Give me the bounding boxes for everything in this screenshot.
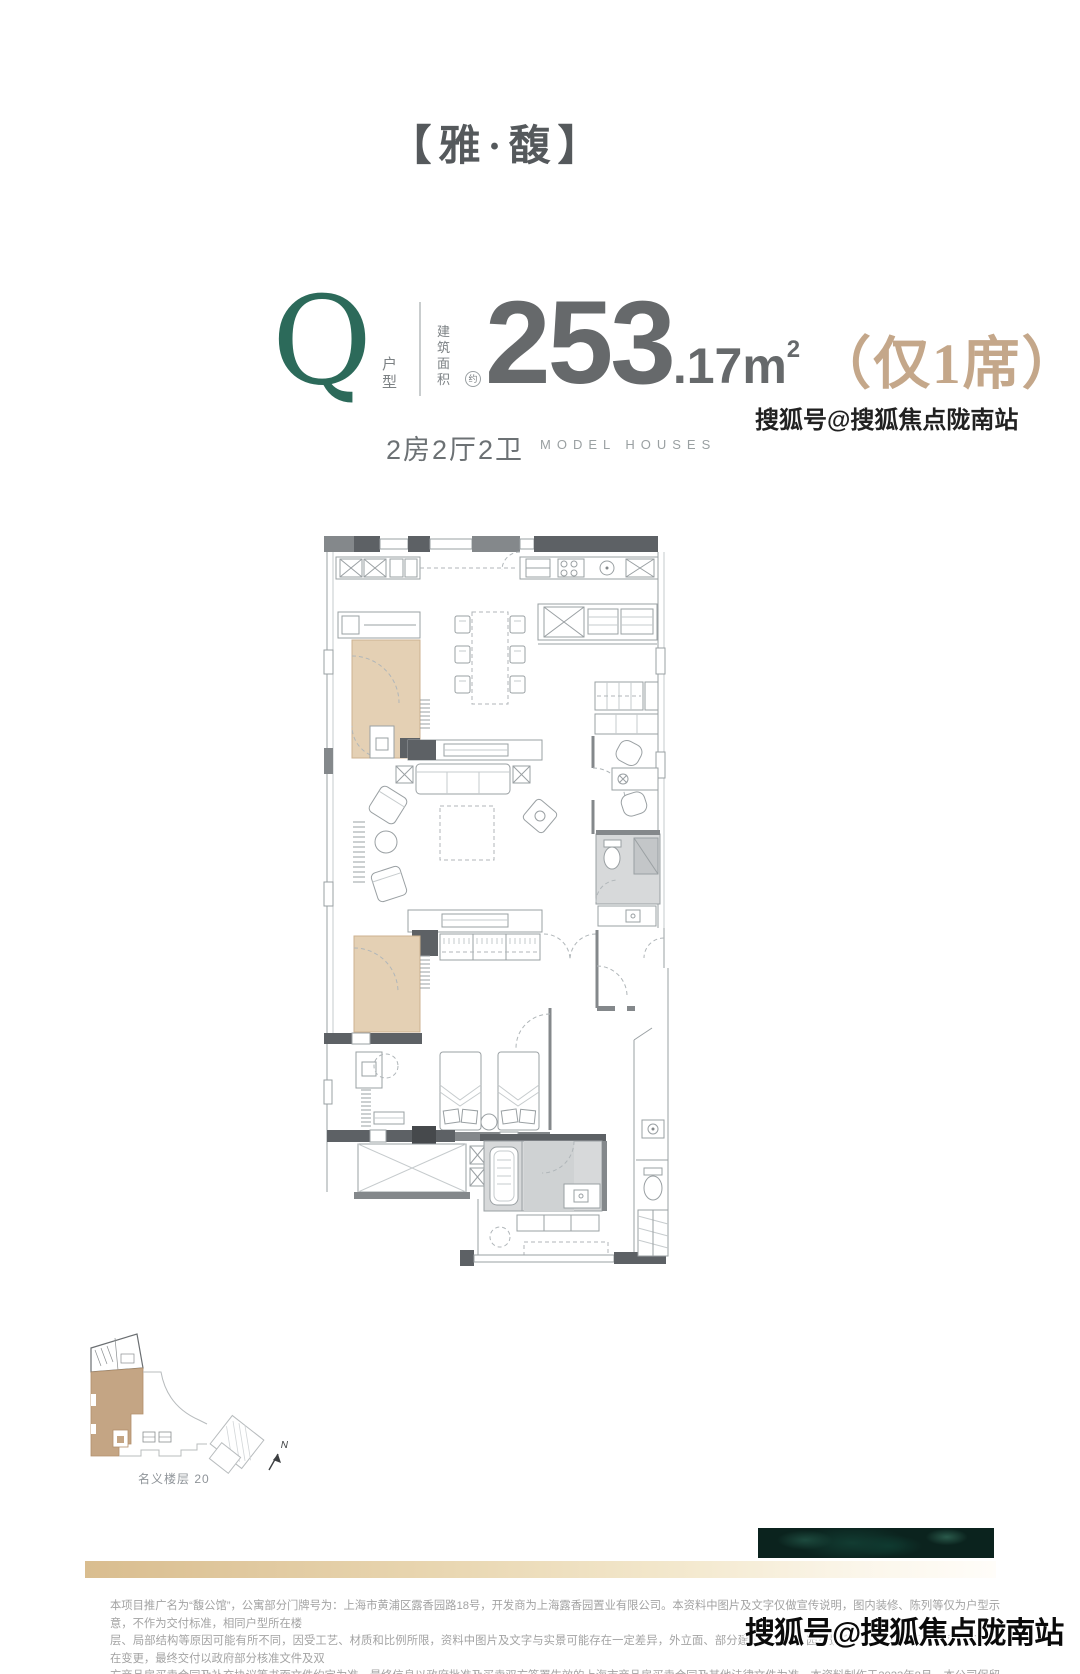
bathroom-1 xyxy=(596,830,660,926)
area-decimal: .17m xyxy=(673,338,787,394)
exclusive-badge: （仅1席） xyxy=(814,318,1080,400)
unit-letter: Q xyxy=(272,280,372,402)
flyer-page: 【雅·馥】 Q 户型 建筑 面积 约 253.17m2 （仅1席） 2房2厅2卫… xyxy=(0,0,1080,1674)
elevator-shaft xyxy=(354,1144,485,1199)
master-bathroom xyxy=(480,1134,607,1231)
watermark-top: 搜狐号@搜狐焦点陇南站 xyxy=(755,400,1018,435)
dining-area xyxy=(455,612,525,704)
site-plan: N xyxy=(85,1326,290,1478)
tv-wardrobe-wall xyxy=(408,910,596,960)
spec-divider xyxy=(419,302,421,396)
green-marble-image xyxy=(758,1528,994,1558)
area-label-line1: 建筑 xyxy=(437,324,463,356)
area-label-line2: 面积 xyxy=(437,356,463,388)
entry-hall xyxy=(338,612,430,758)
gold-divider-bar xyxy=(85,1561,996,1578)
console-cabinets xyxy=(538,604,658,734)
area-approx-badge: 约 xyxy=(465,371,481,387)
top-wall xyxy=(324,536,658,552)
floor-level-label: 名义楼层 20 xyxy=(138,1470,210,1487)
area-label: 建筑 面积 约 xyxy=(437,324,481,388)
hall-2 xyxy=(354,936,430,1032)
north-arrow-icon xyxy=(269,1454,281,1470)
floor-plan-drawing xyxy=(312,500,670,1266)
area-unit-sup: 2 xyxy=(787,336,800,363)
layout-config: 2房2厅2卫 xyxy=(386,428,524,467)
page-title: 【雅·馥】 xyxy=(0,112,996,173)
unit-type-label: 户型 xyxy=(378,356,399,392)
area-value: 253.17m2 xyxy=(485,284,800,402)
right-wing xyxy=(597,928,668,1256)
kitchen-area xyxy=(336,552,658,579)
living-room xyxy=(353,740,558,903)
north-label: N xyxy=(281,1440,288,1451)
study-room xyxy=(593,736,658,834)
site-plan-drawing xyxy=(85,1326,290,1478)
model-houses-label: MODEL HOUSES xyxy=(540,437,716,452)
watermark-bottom: 搜狐号@搜狐焦点陇南站 xyxy=(745,1608,1063,1652)
unit-spec-row: Q 户型 建筑 面积 约 253.17m2 （仅1席） xyxy=(272,280,1080,402)
disclaimer-line: 方商品房买卖合同及补充协议等书面文件约定为准，最终信息以政府批准及买卖双方签署生… xyxy=(110,1668,1000,1674)
